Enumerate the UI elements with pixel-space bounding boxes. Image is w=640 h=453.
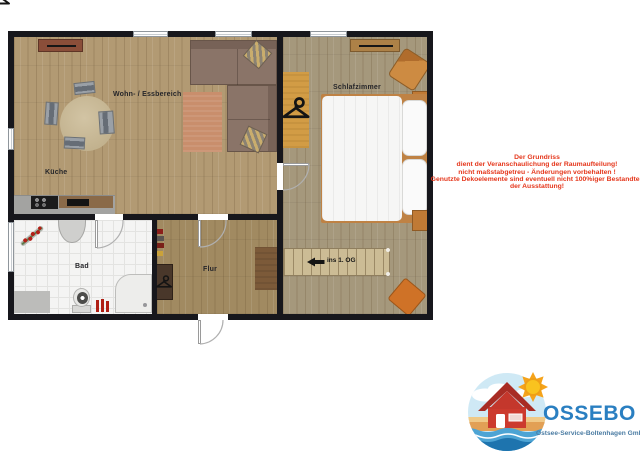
door-arc (200, 320, 223, 344)
disclaimer-line: der Ausstattung! (420, 183, 640, 190)
window (8, 222, 14, 272)
wave-icon (463, 438, 553, 451)
disclaimer-line: Genutzte Dekoelemente sind eventuell nic… (420, 176, 640, 183)
wall-segment (8, 31, 14, 320)
wall-segment (228, 214, 283, 220)
dining-chair (73, 81, 95, 95)
door-leaf (283, 163, 309, 166)
door-leaf (198, 320, 201, 344)
disclaimer-line: nicht maßstabgetreu - Änderungen vorbeha… (420, 169, 640, 176)
rug (183, 92, 222, 152)
sofa-seam (237, 49, 238, 86)
sofa-seam (228, 119, 270, 120)
candle (106, 301, 109, 312)
hallway-mat (255, 247, 278, 290)
wall-segment (8, 31, 133, 37)
toilet (73, 288, 90, 307)
sun-icon (518, 372, 548, 402)
dining-chair (44, 102, 59, 126)
kitchen-sink (67, 199, 89, 206)
room-label-bedroom: Schlafzimmer (333, 84, 381, 91)
window (310, 31, 347, 37)
room-label-hallway: Flur (203, 266, 217, 273)
bed-duvet (322, 96, 402, 221)
hallway-wardrobe (155, 264, 173, 300)
window (215, 31, 252, 37)
bedroom-wardrobe (283, 72, 309, 148)
wall-segment (152, 220, 157, 314)
stair-post (386, 248, 390, 252)
shoe (156, 251, 163, 256)
door-opening (198, 214, 228, 220)
stair-post (386, 272, 390, 276)
stairs-label: ins 1. OG (327, 257, 356, 264)
door-opening (198, 314, 228, 320)
wall-segment (277, 190, 283, 320)
wall-segment (228, 314, 433, 320)
wall-segment (8, 314, 198, 320)
wall-segment (277, 31, 283, 163)
shower-drain (143, 303, 147, 307)
sideboard-handle (47, 45, 76, 47)
window (133, 31, 168, 37)
toilet-seat (77, 292, 88, 304)
nightstand (412, 210, 428, 231)
disclaimer-line: dient der Veranschaulichung der Raumauft… (420, 161, 640, 168)
room-label-living-dining: Wohn- / Essbereich (113, 91, 181, 98)
wall-segment (347, 31, 433, 37)
wall-segment (8, 214, 95, 220)
stove (31, 196, 58, 209)
candle (101, 299, 104, 312)
window (8, 128, 14, 150)
logo-name: OSSEBO (543, 402, 636, 426)
logo-tagline: Ostsee-Service-Boltenhagen GmbH (536, 430, 640, 437)
door-leaf (198, 220, 201, 247)
bedroom-sideboard (350, 39, 400, 52)
disclaimer-text: Der Grundriss dient der Veranschaulichun… (420, 154, 640, 190)
disclaimer-line: Der Grundriss (420, 154, 640, 161)
bath-mat (12, 291, 50, 313)
candle (96, 300, 99, 312)
door-opening (277, 163, 283, 190)
room-label-bathroom: Bad (75, 263, 89, 270)
sideboard-handle (359, 45, 393, 47)
sideboard (38, 39, 83, 52)
wall-segment (123, 214, 198, 220)
company-logo: OSSEBO Ostsee-Service-Boltenhagen GmbH (463, 369, 640, 451)
door-leaf (95, 220, 98, 248)
dining-chair (98, 111, 115, 135)
bed-pillow (402, 100, 427, 156)
wall-segment (168, 31, 215, 37)
room-label-kitchen: Küche (45, 169, 67, 176)
dining-chair (64, 136, 86, 149)
shower (115, 274, 152, 313)
logo-mark (463, 369, 553, 451)
door-opening (95, 214, 123, 220)
